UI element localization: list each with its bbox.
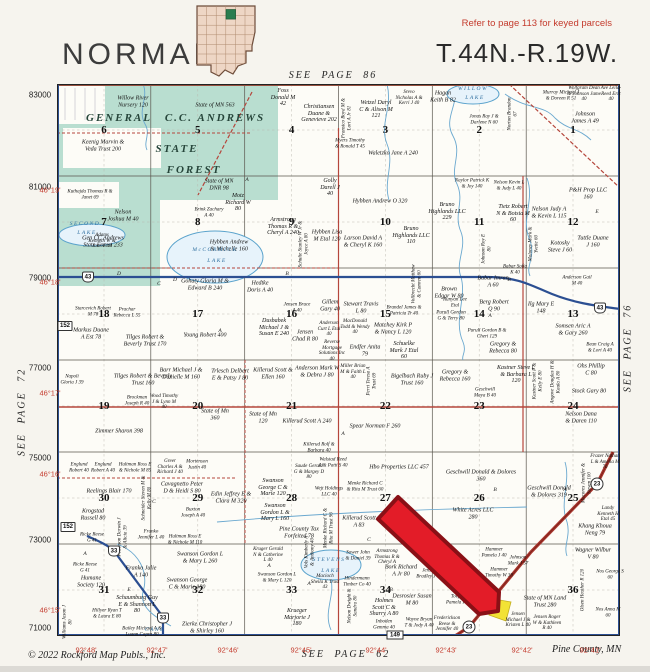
grid-coordinate-number: 71000: [29, 624, 51, 633]
see-page-left: SEE PAGE 72: [17, 368, 28, 456]
plat-map-page: NORMAN T.44N.-R.19W. Refer to page 113 f…: [0, 0, 650, 672]
keyed-parcels-note: Refer to page 113 for keyed parcels: [462, 18, 612, 29]
grid-coordinate-number: 83000: [29, 91, 51, 100]
longitude-label: 92°45': [290, 646, 311, 655]
scan-edge: [0, 666, 650, 672]
highlight-arrow: [378, 497, 499, 614]
grid-coordinate-number: 73000: [29, 536, 51, 545]
township-range-label: T.44N.-R.19W.: [436, 38, 618, 69]
longitude-label: 92°46': [217, 646, 238, 655]
grid-coordinate-number: 75000: [29, 454, 51, 463]
highlighted-township-cell: [226, 10, 236, 20]
county-inset-map: [186, 3, 260, 81]
longitude-label: 92°43': [435, 646, 456, 655]
longitude-label: 92°41': [579, 646, 600, 655]
see-page-right: SEE PAGE 76: [623, 304, 634, 392]
copyright: © 2022 Rockford Map Publs., Inc.: [28, 650, 166, 661]
longitude-label: 92°47': [146, 646, 167, 655]
longitude-label: 92°48': [75, 646, 96, 655]
longitude-label: 92°44': [365, 646, 386, 655]
longitude-label: 92°42': [511, 646, 532, 655]
see-page-top: SEE PAGE 86: [289, 70, 377, 81]
grid-coordinate-number: 77000: [29, 364, 51, 373]
map-area: Willow River Nursery 120State of MN 563K…: [57, 84, 620, 636]
map-overlay-layer: [57, 84, 620, 636]
